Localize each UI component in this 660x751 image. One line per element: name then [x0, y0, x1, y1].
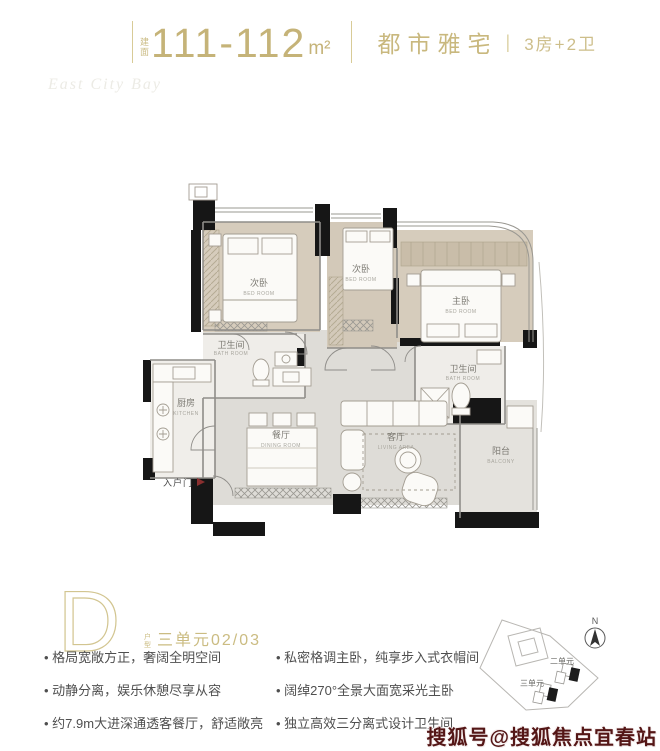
room-label-bed1-cn: 次卧: [250, 277, 268, 288]
room-label-living-en: LIVING AREA: [378, 445, 415, 451]
site-plan: N 二单元 三单元: [476, 606, 626, 731]
room-label-bed1-en: BED ROOM: [243, 291, 274, 297]
room-label-bath1-en: BATH ROOM: [214, 351, 248, 357]
header: 建面 111-112 m² 都市雅宅 | 3房+2卫: [132, 16, 597, 68]
script-watermark: East City Bay: [48, 76, 162, 94]
unit-info: D 户型 三单元02/03: [56, 584, 261, 660]
entrance-label: 入户门: [163, 477, 193, 488]
room-label-master-en: BED ROOM: [445, 309, 476, 315]
area-prefix-label: 建面: [140, 37, 151, 57]
unit-letter-suffix: 户型: [144, 634, 153, 650]
room-label-bath2-en: BATH ROOM: [446, 376, 480, 382]
site-plan-drawing: N 二单元 三单元: [476, 606, 626, 726]
room-label-living-cn: 客厅: [387, 431, 405, 442]
floor-plan-drawing: 次卧 BED ROOM 次卧 BED ROOM 主卧 BED ROOM 卫生间 …: [115, 182, 545, 574]
feature-item: 阔绰270°全景大面宽采光主卧: [276, 683, 486, 699]
feature-item: 约7.9m大进深通透客餐厅，舒适敞亮: [44, 716, 279, 732]
room-label-balcony-cn: 阳台: [492, 445, 510, 456]
layout-type-label: 3房+2卫: [524, 30, 597, 55]
room-label-kitchen-cn: 厨房: [177, 397, 195, 408]
project-type-label: 都市雅宅: [378, 25, 498, 59]
header-separator: |: [506, 32, 511, 53]
north-compass-icon: N: [585, 616, 605, 648]
room-label-dining-cn: 餐厅: [272, 429, 290, 440]
unit-letter: D: [58, 584, 120, 660]
sohu-watermark: 搜狐号@搜狐焦点宜春站: [426, 721, 657, 750]
room-label-balcony-en: BALCONY: [487, 459, 515, 465]
area-block: 建面 111-112 m²: [132, 21, 331, 63]
building-label-unit3: 三单元: [520, 678, 544, 688]
north-label: N: [592, 616, 599, 626]
building-label-unit2: 二单元: [550, 656, 574, 666]
feature-item: 格局宽敞方正，奢阔全明空间: [44, 650, 279, 666]
area-unit: m²: [308, 38, 330, 60]
room-label-bath2-cn: 卫生间: [449, 363, 476, 374]
area-value: 111-112: [151, 23, 306, 63]
floor-plan: 次卧 BED ROOM 次卧 BED ROOM 主卧 BED ROOM 卫生间 …: [115, 182, 545, 579]
room-label-bed2-en: BED ROOM: [345, 277, 376, 283]
feature-item: 私密格调主卧，纯享步入式衣帽间: [276, 650, 486, 666]
feature-item: 动静分离，娱乐休憩尽享从容: [44, 683, 279, 699]
room-label-dining-en: DINING ROOM: [261, 443, 301, 449]
header-divider: [351, 21, 352, 63]
feature-column-left: 格局宽敞方正，奢阔全明空间 动静分离，娱乐休憩尽享从容 约7.9m大进深通透客餐…: [44, 650, 279, 749]
room-label-bath1-cn: 卫生间: [217, 339, 244, 350]
room-label-kitchen-en: KITCHEN: [173, 411, 198, 417]
room-label-master-cn: 主卧: [452, 295, 470, 306]
unit-number-label: 三单元02/03: [157, 626, 261, 650]
unit-letter-outline: D: [56, 584, 142, 660]
room-label-bed2-cn: 次卧: [352, 263, 370, 274]
